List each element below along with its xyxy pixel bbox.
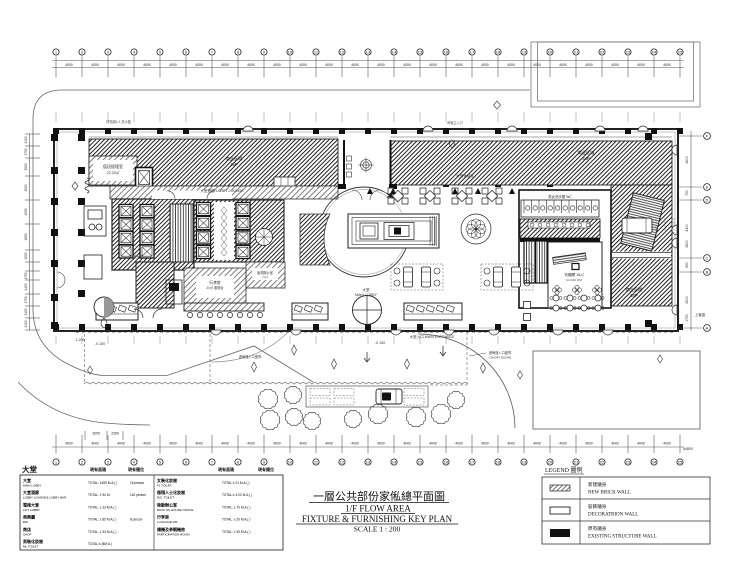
svg-text:TOTAL: 1459 M.A.( ): TOTAL: 1459 M.A.( ) (88, 481, 117, 485)
svg-text:TOTAL: ± 30 M.A.( ): TOTAL: ± 30 M.A.( ) (222, 530, 250, 534)
svg-text:17: 17 (470, 50, 475, 55)
svg-text:16: 16 (444, 50, 449, 55)
svg-text:男女洗手間 WC: 男女洗手間 WC (548, 194, 572, 199)
svg-text:商业区域: 商业区域 (578, 149, 596, 156)
svg-text:傷殘人士化妝間: 傷殘人士化妝間 (156, 489, 185, 495)
svg-text:14: 14 (392, 50, 397, 55)
svg-text:DIS. TOILET: DIS. TOILET (157, 496, 174, 500)
svg-text:15: 15 (418, 50, 423, 55)
svg-text:4000: 4000 (117, 442, 125, 446)
svg-text:2400: 2400 (24, 136, 28, 143)
svg-text:4000: 4000 (65, 442, 73, 446)
svg-text:4000: 4000 (559, 63, 567, 67)
svg-text:LUGGAGE RM: LUGGAGE RM (157, 520, 178, 524)
svg-text:ML TOILET: ML TOILET (23, 545, 38, 549)
svg-text:CANOPY BOUND: CANOPY BOUND (489, 356, 512, 360)
svg-text:4000: 4000 (377, 63, 385, 67)
svg-text:商場主入口: 商場主入口 (447, 120, 463, 125)
svg-text:23: 23 (626, 50, 631, 55)
svg-text:10: 10 (288, 460, 293, 465)
svg-text:4000: 4000 (247, 63, 255, 67)
svg-text:4000: 4000 (221, 63, 229, 67)
svg-text:4000: 4000 (429, 63, 437, 67)
svg-text:SCALE 1 : 200: SCALE 1 : 200 (354, 525, 401, 534)
svg-text:22: 22 (600, 460, 605, 465)
svg-text:-0.150: -0.150 (95, 342, 105, 346)
svg-text:25: 25 (678, 50, 683, 55)
svg-text:現有面積: 現有面積 (89, 466, 107, 472)
svg-text:4000: 4000 (273, 63, 281, 67)
svg-text:19: 19 (522, 460, 527, 465)
svg-text:4000: 4000 (481, 442, 489, 446)
svg-text:950: 950 (685, 262, 689, 268)
svg-text:BIZ.: BIZ. (23, 520, 29, 524)
svg-text:商业区域: 商业区域 (226, 155, 244, 162)
svg-text:17: 17 (470, 460, 475, 465)
svg-text:4000: 4000 (611, 63, 619, 67)
svg-text:上客區: 上客區 (695, 312, 706, 317)
svg-text:商业区域: 商业区域 (626, 286, 644, 293)
svg-text:4000: 4000 (221, 442, 229, 446)
svg-text:4000: 4000 (663, 63, 671, 67)
svg-text:TOTAL: ± 94 M.: TOTAL: ± 94 M. (88, 493, 110, 497)
svg-text:後勤辦公室: 後勤辦公室 (157, 501, 177, 507)
svg-text:4000: 4000 (351, 63, 359, 67)
svg-text:FL TOILET: FL TOILET (157, 484, 172, 488)
svg-text:16: 16 (444, 460, 449, 465)
svg-text:TOTAL:± 4.02 M.A.( ): TOTAL:± 4.02 M.A.( ) (222, 493, 252, 497)
svg-text:TOTAL: ± 34 M.A.( ): TOTAL: ± 34 M.A.( ) (88, 530, 116, 534)
svg-text:4000: 4000 (143, 63, 151, 67)
svg-text:NEW BRICK WALL: NEW BRICK WALL (588, 491, 631, 496)
svg-text:4000: 4000 (117, 63, 125, 67)
svg-text:現有面積: 現有面積 (217, 466, 235, 472)
svg-text:15: 15 (418, 460, 423, 465)
svg-text:現有擺位: 現有擺位 (257, 466, 274, 472)
svg-text:商店: 商店 (23, 526, 31, 532)
svg-text:4000: 4000 (455, 442, 463, 446)
svg-text:16 person: 16 person (130, 481, 144, 485)
svg-text:4000: 4000 (325, 63, 333, 67)
svg-text:4000: 4000 (585, 442, 593, 446)
svg-text:現有擺位: 現有擺位 (127, 466, 144, 472)
svg-text:遮雨篷入口邊界: 遮雨篷入口邊界 (239, 354, 262, 359)
svg-text:4000: 4000 (507, 63, 515, 67)
svg-text:大堂: 大堂 (362, 287, 370, 292)
svg-text:64800: 64800 (683, 447, 693, 451)
svg-text:FIXTURE & FURNISHING KEY PLAN: FIXTURE & FURNISHING KEY PLAN (302, 514, 453, 524)
svg-text:BACK OF HOUSE OFFICE: BACK OF HOUSE OFFICE (157, 508, 194, 512)
svg-text:4000: 4000 (403, 442, 411, 446)
svg-text:DECORATRION WALL: DECORATRION WALL (588, 513, 638, 518)
svg-text:大堂: 大堂 (22, 464, 37, 474)
svg-text:1750: 1750 (24, 296, 28, 303)
svg-text:14: 14 (392, 460, 397, 465)
svg-text:4000: 4000 (585, 63, 593, 67)
svg-text:20: 20 (548, 50, 553, 55)
svg-text:3600: 3600 (685, 156, 689, 164)
svg-text:女裝化妝間: 女裝化妝間 (157, 477, 177, 483)
svg-text:54P: 54P (630, 293, 638, 298)
svg-text:-0.150: -0.150 (375, 341, 385, 345)
svg-text:大堂酒廊: 大堂酒廊 (23, 489, 39, 495)
svg-text:140 person: 140 person (130, 493, 146, 497)
svg-text:21: 21 (574, 460, 579, 465)
svg-text:18: 18 (496, 50, 501, 55)
svg-text:4000: 4000 (455, 63, 463, 67)
svg-text:4000: 4000 (195, 63, 203, 67)
svg-text:4800: 4800 (24, 233, 28, 240)
svg-text:詳見圖A-1 放大圖: 詳見圖A-1 放大圖 (106, 119, 131, 124)
svg-text:4000: 4000 (637, 442, 645, 446)
svg-text:總機及參觀機房: 總機及參觀機房 (157, 526, 185, 532)
svg-text:4000: 4000 (247, 442, 255, 446)
svg-text:大堂休息區: 大堂休息區 (456, 173, 474, 178)
svg-text:24: 24 (652, 460, 657, 465)
svg-text:3000: 3000 (24, 163, 28, 170)
svg-text:23: 23 (626, 460, 631, 465)
svg-text:4000: 4000 (481, 63, 489, 67)
svg-text:2350: 2350 (111, 432, 119, 436)
svg-text:衣帽間 15㎡: 衣帽間 15㎡ (564, 272, 584, 277)
svg-text:70㎡: 70㎡ (262, 275, 268, 279)
svg-text:大堂入口 MAIN ENTRANCE: 大堂入口 MAIN ENTRANCE (409, 334, 455, 339)
svg-text:4000: 4000 (533, 442, 541, 446)
svg-text:36P: 36P (230, 162, 238, 167)
svg-text:20: 20 (548, 460, 553, 465)
svg-text:LOBBY LOUNGE& LOBBY BAR: LOBBY LOUNGE& LOBBY BAR (23, 496, 67, 500)
svg-text:13: 13 (366, 50, 371, 55)
svg-text:TOTAL: ± 70 M.A.( ): TOTAL: ± 70 M.A.( ) (222, 505, 250, 509)
svg-text:8 person: 8 person (130, 518, 143, 522)
svg-text:TOTAL:± (8M.A.): TOTAL:± (8M.A.) (88, 542, 112, 546)
svg-text:電梯大堂: 電梯大堂 (23, 501, 39, 507)
svg-text:遮雨篷入口邊界: 遮雨篷入口邊界 (489, 350, 512, 355)
svg-text:MAIN LOBBY: MAIN LOBBY (355, 293, 378, 297)
svg-text:1/F FLOW AREA: 1/F FLOW AREA (345, 504, 411, 514)
svg-text:電梯大堂: 電梯大堂 (129, 254, 144, 259)
svg-text:20㎡ 服務台: 20㎡ 服務台 (206, 285, 223, 290)
svg-text:值班經理室: 值班經理室 (103, 163, 123, 169)
svg-text:LIFT LOBBY: LIFT LOBBY (23, 508, 40, 512)
svg-text:4000: 4000 (429, 442, 437, 446)
svg-text:4000: 4000 (299, 442, 307, 446)
svg-text:21: 21 (574, 50, 579, 55)
svg-text:2800: 2800 (685, 240, 689, 248)
svg-text:4000: 4000 (533, 63, 541, 67)
svg-text:4000: 4000 (351, 442, 359, 446)
svg-text:4000: 4000 (169, 442, 177, 446)
svg-text:18: 18 (496, 460, 501, 465)
svg-text:2600: 2600 (685, 296, 689, 304)
svg-text:裝飾牆身: 裝飾牆身 (588, 503, 607, 510)
svg-text:1750: 1750 (24, 272, 28, 279)
svg-text:TOTAL: ± 20 M.A.( ): TOTAL: ± 20 M.A.( ) (222, 518, 250, 522)
svg-text:一層公共部份家俬總平面圖: 一層公共部份家俬總平面圖 (313, 489, 445, 503)
svg-text:E: E (706, 185, 709, 190)
svg-text:4000: 4000 (559, 442, 567, 446)
svg-text:原有牆身: 原有牆身 (588, 525, 607, 532)
svg-text:行李房: 行李房 (209, 280, 221, 285)
svg-text:12: 12 (340, 460, 345, 465)
svg-text:大堂酒廊 LOBBY LOUNGE: 大堂酒廊 LOBBY LOUNGE (200, 188, 244, 193)
svg-text:22: 22 (600, 50, 605, 55)
svg-text:大堂: 大堂 (23, 477, 31, 483)
svg-text:4000: 4000 (273, 442, 281, 446)
svg-text:B: B (706, 270, 709, 275)
svg-text:1,205: 1,205 (76, 338, 85, 342)
svg-text:4000: 4000 (65, 63, 73, 67)
svg-text:C: C (706, 256, 709, 261)
svg-text:2605: 2605 (92, 432, 100, 436)
svg-text:2400: 2400 (24, 320, 28, 327)
svg-text:19: 19 (522, 50, 527, 55)
svg-text:4400: 4400 (685, 224, 689, 232)
svg-text:4000: 4000 (507, 442, 515, 446)
svg-text:D: D (706, 198, 709, 203)
svg-text:750: 750 (685, 190, 689, 196)
svg-text:12: 12 (340, 50, 345, 55)
svg-text:4000: 4000 (611, 442, 619, 446)
svg-text:TOTAL: ± 85 M.A.( ): TOTAL: ± 85 M.A.( ) (88, 518, 116, 522)
svg-text:3000: 3000 (24, 184, 28, 191)
svg-text:MAIN LOBBY: MAIN LOBBY (23, 484, 41, 488)
svg-text:1750: 1750 (24, 148, 28, 155)
svg-text:2000: 2000 (24, 252, 28, 259)
svg-text:4000: 4000 (299, 63, 307, 67)
svg-text:SHOP: SHOP (23, 532, 32, 536)
svg-text:10: 10 (288, 50, 293, 55)
svg-text:22.25㎡: 22.25㎡ (107, 170, 120, 175)
svg-text:4000: 4000 (195, 442, 203, 446)
svg-text:1750: 1750 (685, 314, 689, 322)
svg-text:4000: 4000 (325, 442, 333, 446)
svg-text:4000: 4000 (377, 442, 385, 446)
svg-text:4500: 4500 (24, 208, 28, 215)
svg-text:4000: 4000 (91, 63, 99, 67)
svg-text:4000: 4000 (169, 63, 177, 67)
svg-text:行李房: 行李房 (156, 514, 169, 520)
svg-text:A: A (706, 326, 709, 331)
svg-text:4000: 4000 (663, 442, 671, 446)
svg-text:LEGEND 圖例: LEGEND 圖例 (545, 466, 583, 474)
svg-text:24: 24 (652, 50, 657, 55)
svg-text:EXISTING STRUCTURE WALL: EXISTING STRUCTURE WALL (588, 535, 657, 540)
svg-text:4000: 4000 (637, 63, 645, 67)
svg-text:34P: 34P (582, 156, 590, 161)
svg-text:TOTAL: ± 23 M.A.( ): TOTAL: ± 23 M.A.( ) (88, 505, 116, 509)
svg-text:1450: 1450 (24, 283, 28, 290)
svg-text:新建牆身: 新建牆身 (588, 481, 607, 488)
svg-text:PARTICIPATION ROOM: PARTICIPATION ROOM (157, 532, 190, 536)
svg-text:2400: 2400 (24, 308, 28, 315)
svg-text:4000: 4000 (403, 63, 411, 67)
svg-text:TOTAL:± 21 M.A.( ): TOTAL:± 21 M.A.( ) (222, 481, 250, 485)
svg-text:25: 25 (678, 460, 683, 465)
svg-text:男裝化妝間: 男裝化妝間 (23, 538, 43, 544)
svg-text:CLOAK RM: CLOAK RM (566, 278, 582, 282)
svg-text:13: 13 (366, 460, 371, 465)
svg-text:4000: 4000 (143, 442, 151, 446)
svg-text:商務㕔: 商務㕔 (23, 514, 35, 520)
svg-text:4000: 4000 (91, 442, 99, 446)
